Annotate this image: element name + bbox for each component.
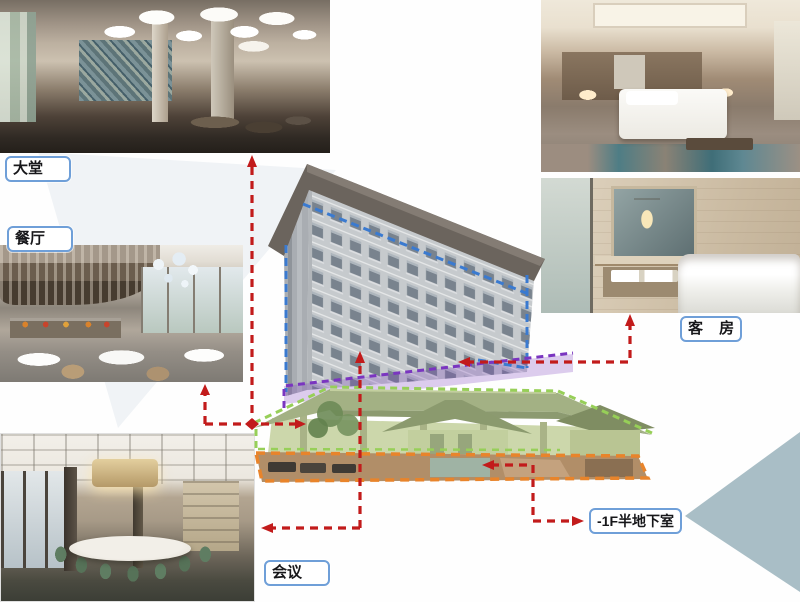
- label-lobby: 大堂: [5, 156, 71, 182]
- label-basement: -1F半地下室: [589, 508, 682, 534]
- label-guestroom: 客 房: [680, 316, 742, 342]
- label-conference: 会议: [264, 560, 330, 586]
- label-restaurant: 餐厅: [7, 226, 73, 252]
- building-podium: [254, 389, 655, 458]
